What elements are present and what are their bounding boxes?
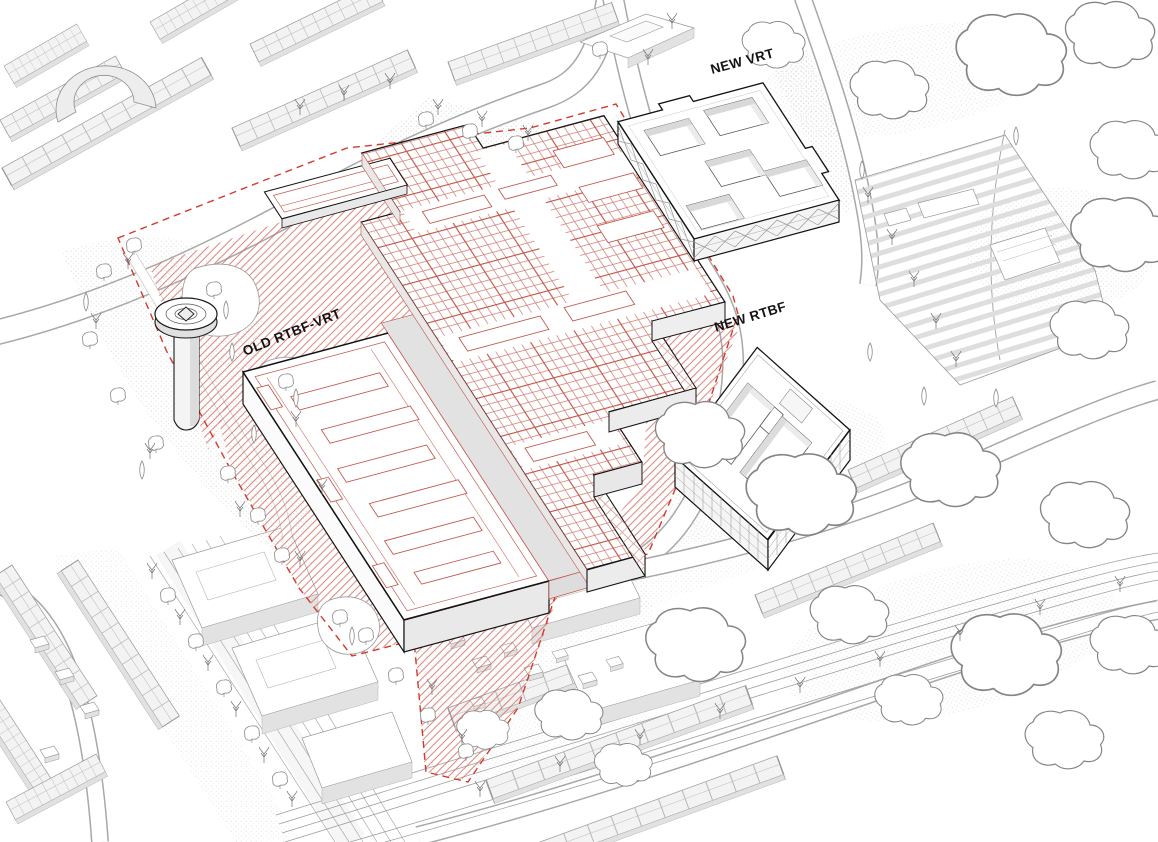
drawing-svg: NEW VRT OLD RTBF-VRT NEW RTBF — [0, 0, 1158, 842]
site-axonometric-drawing: NEW VRT OLD RTBF-VRT NEW RTBF — [0, 0, 1158, 842]
